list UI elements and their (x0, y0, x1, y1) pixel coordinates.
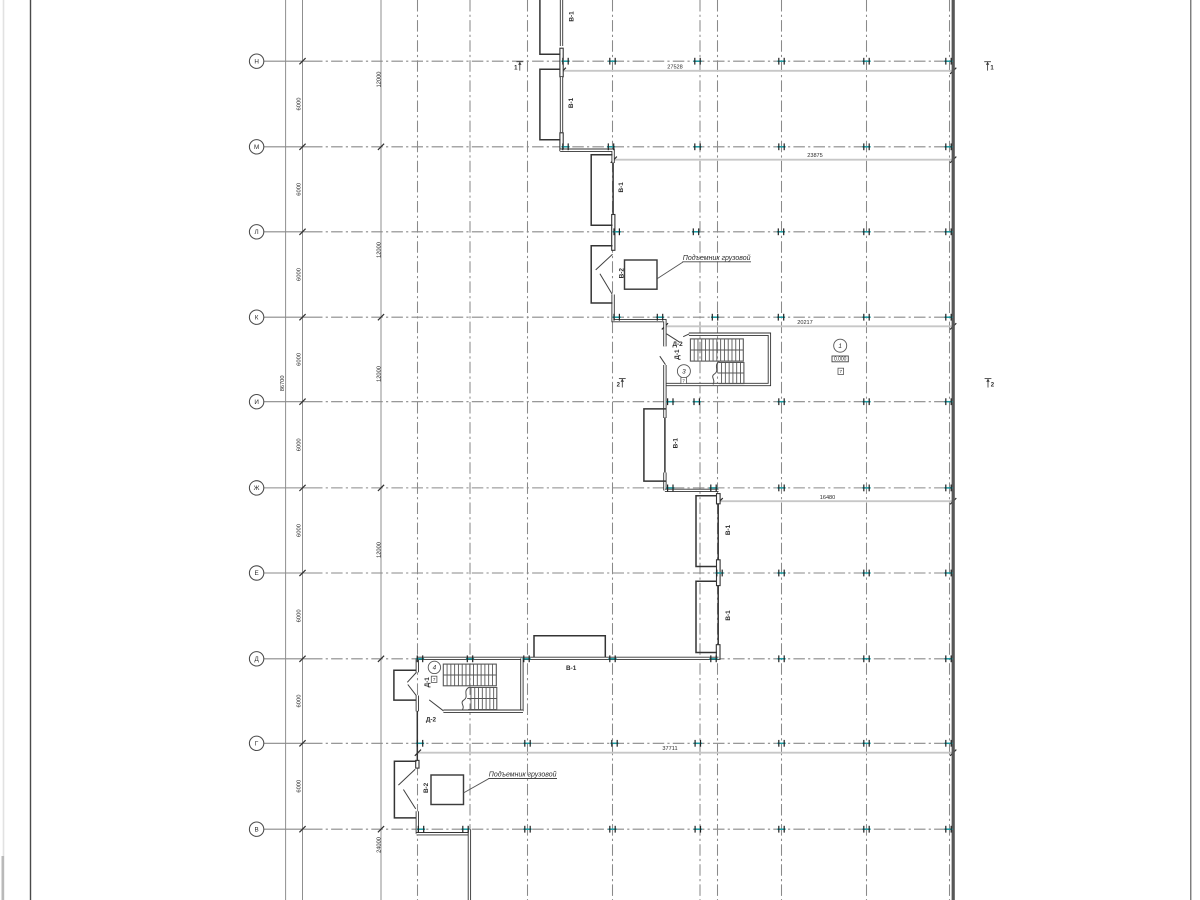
svg-text:23875: 23875 (807, 153, 823, 159)
svg-text:6000: 6000 (296, 780, 302, 793)
svg-text:В-2: В-2 (423, 782, 430, 793)
svg-text:0.000: 0.000 (834, 357, 847, 363)
svg-text:6000: 6000 (296, 524, 302, 537)
svg-text:Подъемник грузовой: Подъемник грузовой (683, 254, 751, 262)
svg-text:В-1: В-1 (672, 438, 679, 449)
svg-text:Д: Д (254, 656, 259, 663)
svg-text:Подъемник грузовой: Подъемник грузовой (489, 771, 557, 779)
svg-text:В-1: В-1 (569, 11, 576, 22)
svg-text:В-1: В-1 (725, 610, 732, 621)
svg-text:В: В (254, 826, 258, 833)
svg-text:Д-1: Д-1 (674, 349, 681, 360)
svg-text:Г: Г (255, 741, 259, 748)
svg-text:Д-2: Д-2 (426, 716, 437, 723)
svg-text:6000: 6000 (296, 695, 302, 708)
svg-text:6000: 6000 (296, 183, 302, 196)
svg-text:Д-1: Д-1 (424, 677, 431, 688)
svg-text:12000: 12000 (377, 366, 383, 382)
svg-text:12000: 12000 (377, 542, 383, 558)
svg-text:1: 1 (838, 343, 842, 350)
svg-text:12000: 12000 (377, 242, 383, 258)
svg-text:В-1: В-1 (725, 524, 732, 535)
svg-text:В-1: В-1 (566, 665, 577, 672)
svg-text:В-2: В-2 (619, 268, 626, 279)
svg-text:6000: 6000 (296, 438, 302, 451)
svg-text:Е: Е (254, 570, 258, 577)
svg-text:6000: 6000 (296, 98, 302, 111)
svg-text:6000: 6000 (296, 353, 302, 366)
svg-text:3: 3 (682, 368, 686, 375)
svg-text:Д-2: Д-2 (672, 341, 683, 348)
svg-text:К: К (255, 314, 259, 321)
svg-text:4: 4 (433, 665, 437, 672)
svg-text:М: М (254, 144, 259, 151)
svg-text:20217: 20217 (797, 320, 813, 326)
svg-text:7: 7 (433, 677, 436, 682)
svg-text:Н: Н (254, 58, 259, 65)
svg-text:7: 7 (840, 369, 843, 374)
svg-text:12000: 12000 (377, 72, 383, 88)
svg-text:6000: 6000 (296, 268, 302, 281)
svg-text:86700: 86700 (280, 375, 286, 391)
svg-text:В-1: В-1 (568, 97, 575, 108)
svg-text:Л: Л (255, 229, 259, 236)
svg-text:В-1: В-1 (618, 182, 625, 193)
svg-text:Ж: Ж (254, 485, 260, 492)
svg-text:И: И (254, 399, 259, 406)
svg-text:7: 7 (682, 378, 685, 383)
svg-text:37711: 37711 (662, 746, 677, 752)
svg-text:6000: 6000 (296, 609, 302, 622)
svg-text:27528: 27528 (667, 64, 683, 70)
svg-text:16480: 16480 (820, 495, 836, 501)
svg-text:24000: 24000 (377, 837, 383, 853)
